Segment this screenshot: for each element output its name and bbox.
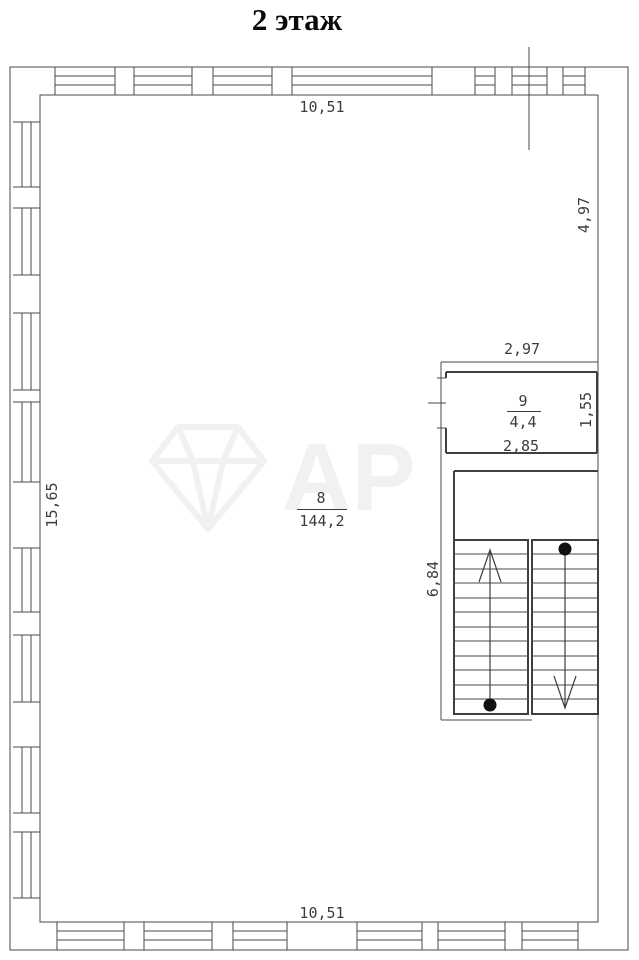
dim-left-height: 15,65 [43,482,61,527]
dim-bottom-width: 10,51 [299,904,344,922]
left-wall-windows [13,122,40,898]
bottom-wall-windows [57,922,578,950]
dim-room9-bottom: 2,85 [503,437,539,455]
room9-fraction-line [507,411,541,412]
dim-staircase-height: 6,84 [424,561,442,597]
top-wall-windows [55,67,585,95]
room8-area: 144,2 [299,512,344,530]
stair-landing [454,471,598,540]
room9-number: 9 [518,392,527,410]
floor-plan-page: АР 2 этаж [0,0,639,960]
dim-room9-top: 2,97 [504,340,540,358]
floor-plan-drawing [0,0,639,960]
dim-right-height: 4,97 [575,197,593,233]
room8-fraction-line [297,509,347,510]
dim-room9-right: 1,55 [577,392,595,428]
staircase [454,471,598,714]
stair-steps [454,554,598,699]
room-9-door-ticks [428,378,446,428]
room9-area: 4,4 [509,413,536,431]
room8-number: 8 [316,489,325,507]
dim-top-width: 10,51 [299,98,344,116]
